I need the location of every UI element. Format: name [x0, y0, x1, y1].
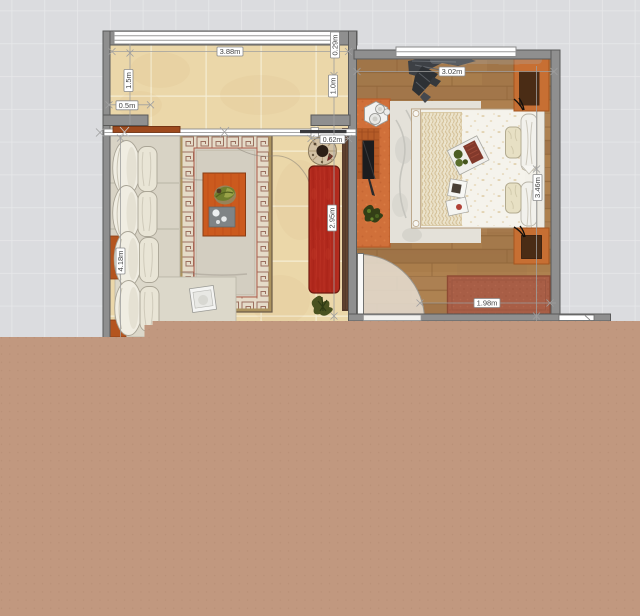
svg-text:1.98m: 1.98m — [477, 299, 498, 308]
svg-text:1.0m: 1.0m — [329, 78, 338, 95]
svg-text:3.88m: 3.88m — [220, 47, 241, 56]
svg-text:0.29m: 0.29m — [331, 35, 340, 56]
svg-text:4.18m: 4.18m — [116, 251, 125, 272]
svg-text:0.62m: 0.62m — [323, 137, 343, 144]
svg-text:1.5m: 1.5m — [124, 72, 133, 89]
svg-text:2.95m: 2.95m — [328, 208, 337, 229]
svg-text:3.02m: 3.02m — [442, 67, 463, 76]
svg-text:3.46m: 3.46m — [533, 177, 542, 198]
svg-text:0.5m: 0.5m — [119, 101, 136, 110]
